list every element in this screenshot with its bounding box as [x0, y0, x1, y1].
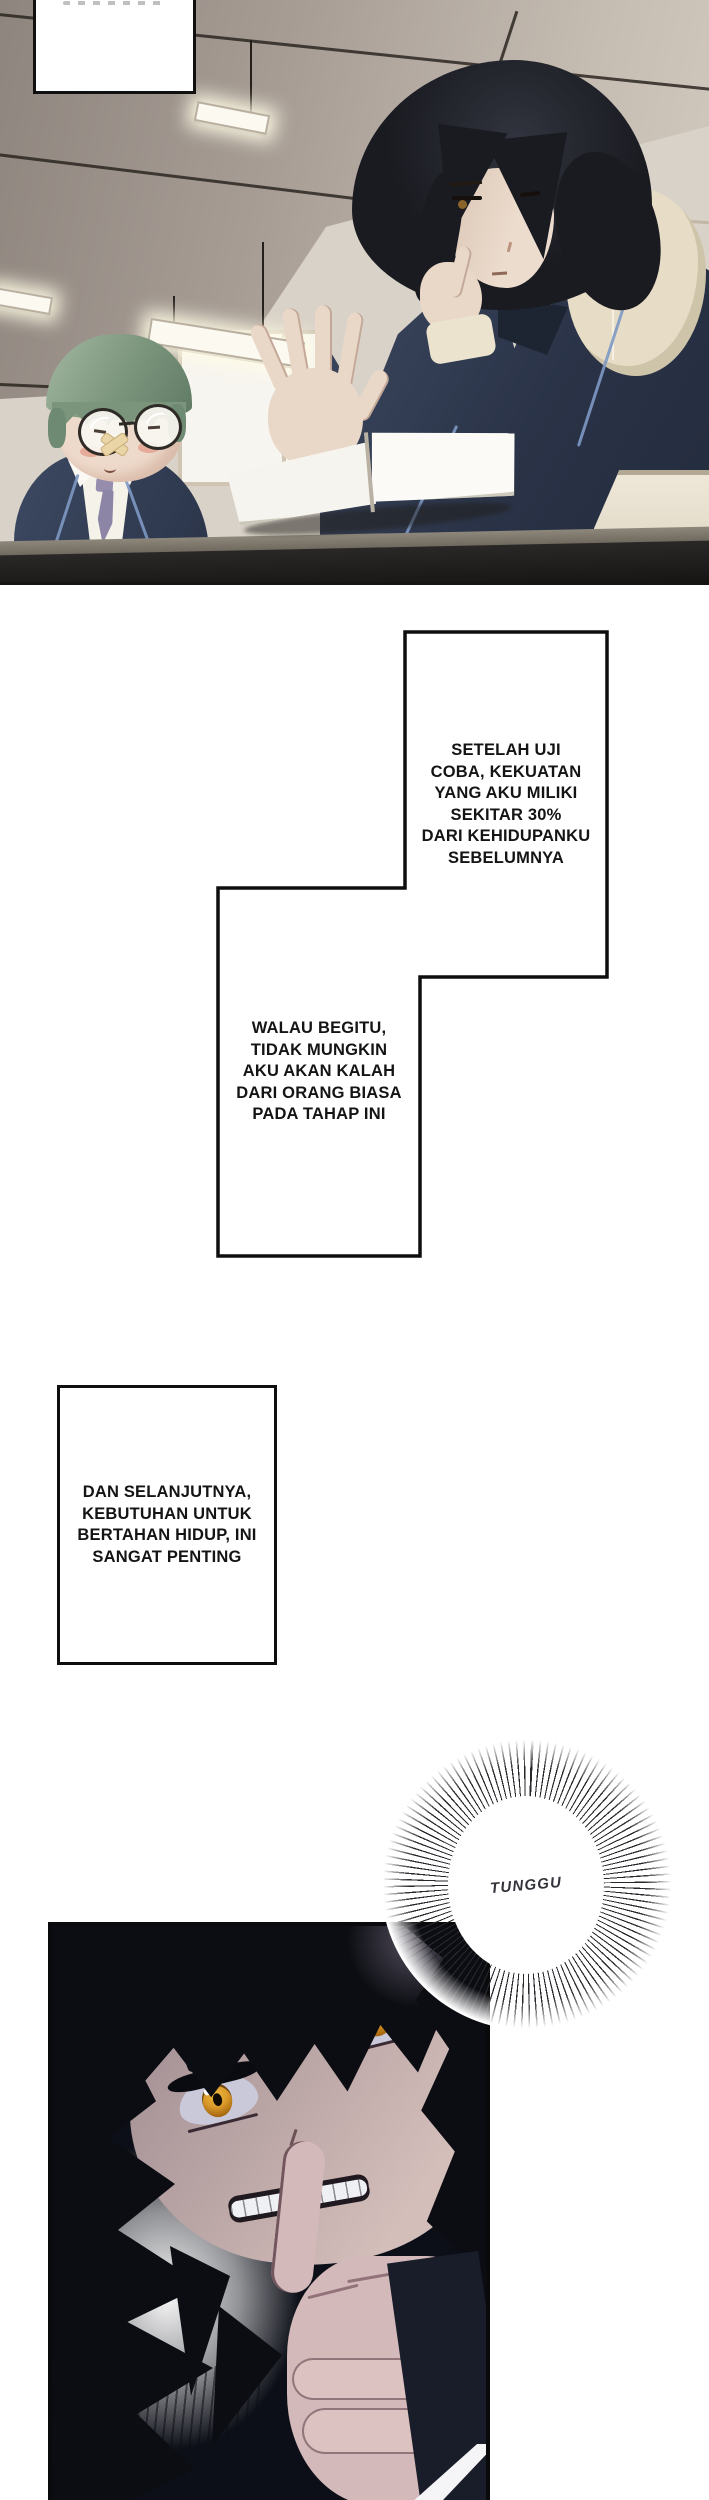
cropped-text-marks [63, 1, 167, 5]
thought-box-2: WALAU BEGITU, TIDAK MUNGKIN AKU AKAN KAL… [218, 888, 420, 1256]
thought-text-2: WALAU BEGITU, TIDAK MUNGKIN AKU AKAN KAL… [236, 1018, 401, 1126]
thought-box-1: SETELAH UJI COBA, KEKUATAN YANG AKU MILI… [405, 632, 607, 977]
open-book [223, 408, 522, 551]
thought-box-3: DAN SELANJUTNYA, KEBUTUHAN UNTUK BERTAHA… [57, 1385, 277, 1665]
manga-page: SETELAH UJI COBA, KEKUATAN YANG AKU MILI… [0, 0, 709, 2500]
shout-text: TUNGGU [489, 1873, 562, 1896]
kid-mouth [104, 464, 116, 473]
kid-sidelock [48, 408, 66, 448]
thought-text-1: SETELAH UJI COBA, KEKUATAN YANG AKU MILI… [422, 740, 591, 869]
shout-bubble: TUNGGU [383, 1740, 671, 2028]
kid-bandage [100, 432, 128, 456]
thought-text-3: DAN SELANJUTNYA, KEBUTUHAN UNTUK BERTAHA… [77, 1482, 256, 1568]
shout-ellipse: TUNGGU [448, 1796, 604, 1974]
panel-classroom [0, 0, 709, 585]
speed-lines [52, 2366, 262, 2500]
cropped-caption-box [33, 0, 196, 94]
book-right-page [366, 416, 520, 509]
